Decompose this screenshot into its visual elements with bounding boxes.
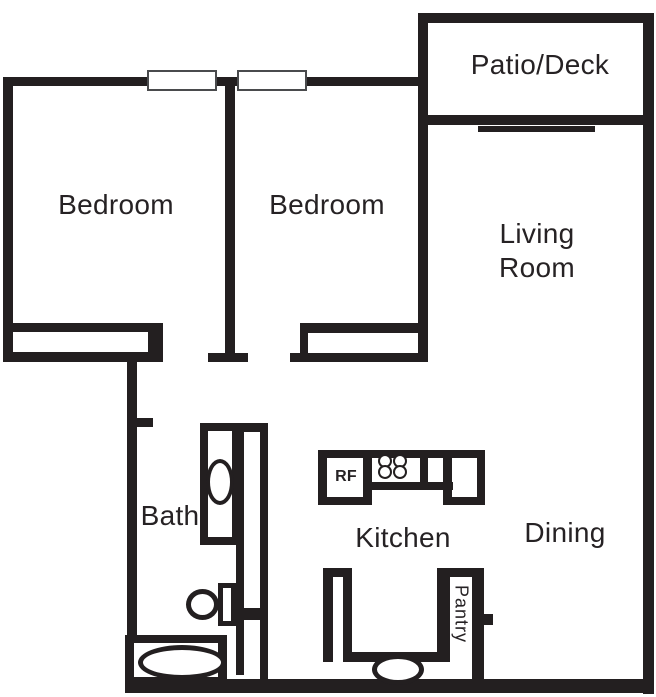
bedroom2-closet-wall [300,323,428,362]
stove-burner-bottom-right [393,465,407,479]
pantry-right-wall [472,568,484,693]
living-room-label-line2: Room [499,252,575,283]
pantry-left-wall [437,568,450,662]
pantry-door-jamb [484,614,493,625]
bath-closet-right-wall [260,432,268,679]
peninsula-left-inner-wall [343,568,352,662]
bathtub-basin [138,645,226,680]
living-room-label-line1: Living [500,218,575,249]
kitchen-counter-bottom-right [443,497,485,505]
bedroom2-closet-wall-extension [290,353,300,362]
patio-door-threshold [478,126,595,132]
kitchen-counter-mid-bottom [363,482,453,490]
patio-deck-label: Patio/Deck [471,49,609,81]
toilet-bowl [186,589,219,620]
bath-label: Bath [141,500,200,532]
kitchen-label: Kitchen [355,522,451,554]
kitchen-counter-bottom-left [318,497,372,505]
bath-door-jamb [135,418,153,427]
patio-top-wall [418,13,653,23]
stove-burner-bottom-left [378,465,392,479]
bedroom1-closet-interior [13,332,148,352]
bedroom1-window [147,70,217,91]
living-room-west-wall [418,13,428,362]
kitchen-counter-divider-2 [420,450,428,490]
bedroom1-closet-wall [3,323,163,362]
bedroom2-closet-interior [308,333,418,353]
floor-plan: Patio/Deck Bedroom Bedroom Living Room B… [0,0,656,697]
refrigerator-label: RF [335,468,357,486]
peninsula-left-outer-wall [323,568,333,662]
kitchen-sink [372,654,424,685]
bedroom2-label: Bedroom [269,189,385,221]
bath-closet-cap [236,608,268,620]
living-room-label: Living Room [499,217,575,285]
pantry-label: Pantry [451,585,472,643]
peninsula-left-cap [323,568,352,577]
bedroom-divider-wall [225,80,235,356]
dining-label: Dining [524,517,605,549]
toilet-tank [218,583,236,626]
bedroom2-window [237,70,307,91]
bath-closet-top-bar [240,423,268,432]
vanity-sink [206,459,234,505]
bedroom1-label: Bedroom [58,189,174,221]
hall-door-jamb [208,353,248,362]
patio-living-wall [418,115,653,125]
exterior-left-wall-upper [3,77,13,332]
bath-closet-left-wall [236,432,244,675]
